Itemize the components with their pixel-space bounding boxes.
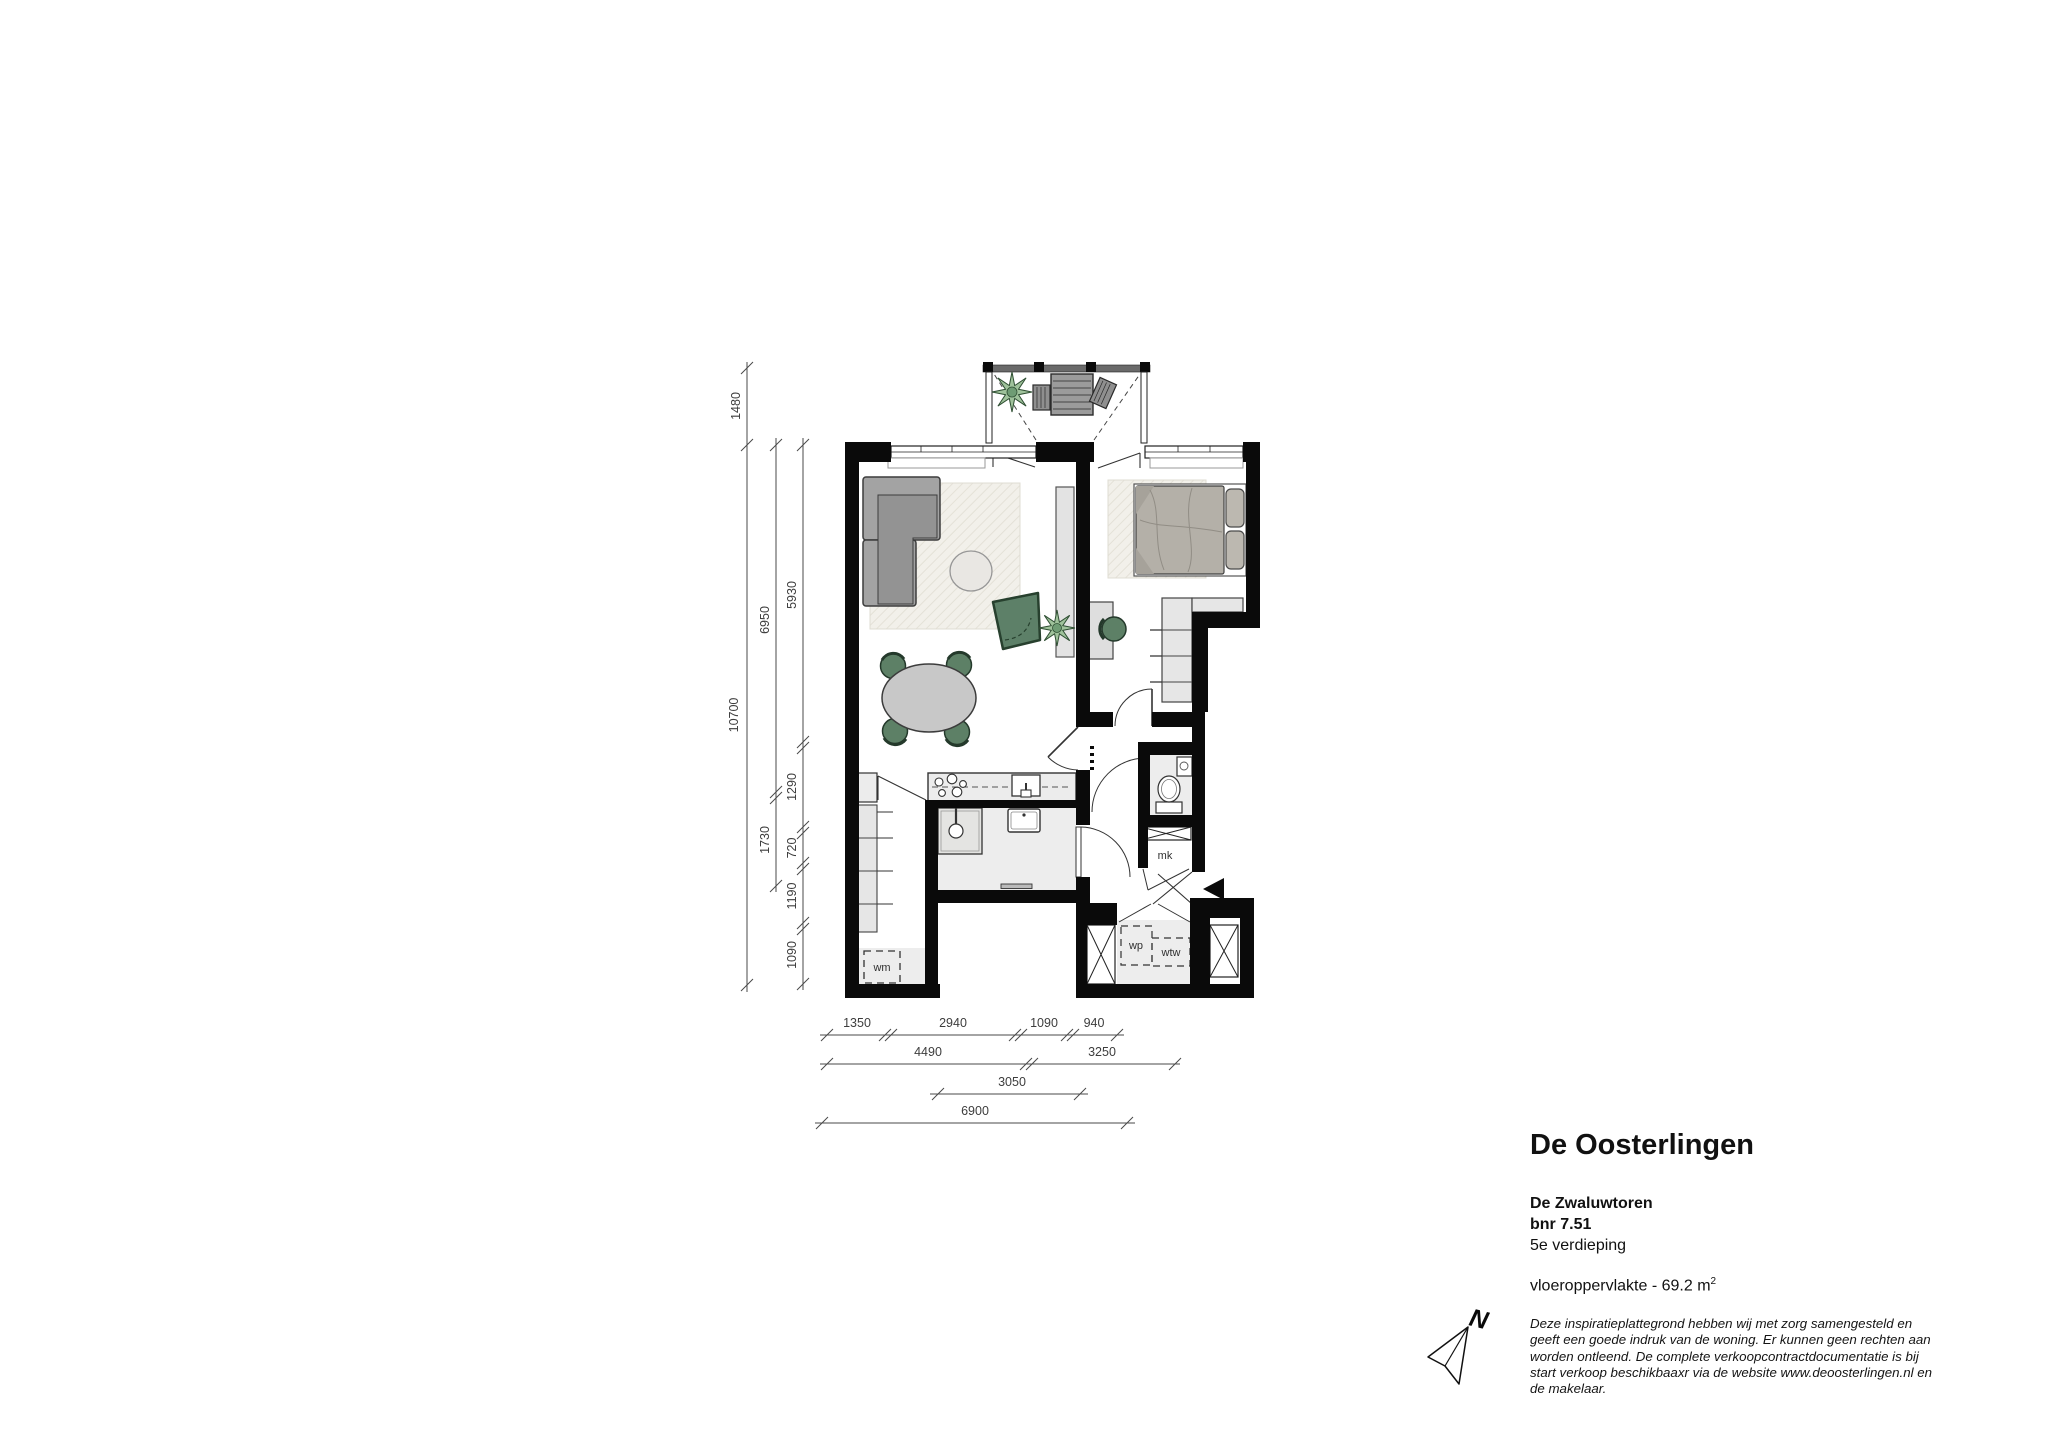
- dim-1190: 1190: [785, 883, 799, 910]
- shaft-above-mk: [1141, 827, 1191, 840]
- entrance-door: [1153, 872, 1192, 904]
- shaft-right: [1210, 925, 1238, 977]
- bedroom-door: [1115, 689, 1152, 726]
- dim-5930: 5930: [785, 581, 799, 609]
- balcony-chair-left: [1033, 385, 1050, 410]
- wall-vent-marks: [1090, 746, 1094, 770]
- dim-1480: 1480: [729, 392, 743, 420]
- balcony-rail-top: [983, 365, 1150, 372]
- pillow: [1226, 531, 1244, 569]
- beanbag-chair: [993, 593, 1040, 649]
- bathroom-door: [1076, 827, 1130, 877]
- label-wp: wp: [1128, 940, 1143, 952]
- kitchen-stub-cabinet: [857, 773, 877, 802]
- north-label: N: [1467, 1304, 1492, 1336]
- bedroom-window: [1145, 446, 1243, 468]
- bathroom-sink: [1008, 809, 1040, 832]
- balcony-plant-pot: [1007, 387, 1017, 397]
- dim-6950: 6950: [758, 606, 772, 634]
- kitchen-sink: [1012, 775, 1040, 797]
- closet-door-swing: [1119, 904, 1190, 922]
- dim-10700: 10700: [727, 698, 741, 733]
- bedroom-balcony-door: [1098, 453, 1140, 468]
- dining-table: [882, 664, 976, 732]
- project-title: De Oosterlingen: [1530, 1130, 1960, 1160]
- dim-1290: 1290: [785, 773, 799, 801]
- balcony-post: [1034, 362, 1044, 372]
- dim-1730: 1730: [758, 826, 772, 854]
- kitchen-counter: [857, 773, 1076, 802]
- balcony-rail-right: [1141, 372, 1147, 443]
- label-wm: wm: [872, 962, 890, 974]
- shaft-left: [1087, 925, 1115, 984]
- toilet-sink: [1177, 757, 1192, 776]
- floorplan-page: wm mk wp wtw: [0, 0, 2048, 1448]
- dim-3050: 3050: [998, 1075, 1026, 1089]
- dim-2940: 2940: [939, 1016, 967, 1030]
- label-wtw: wtw: [1161, 947, 1181, 959]
- pillow: [1226, 489, 1244, 527]
- dim-940: 940: [1084, 1016, 1105, 1030]
- floor-area-text: vloeroppervlakte - 69.2 m: [1530, 1277, 1711, 1294]
- laundry-floor: [858, 948, 925, 984]
- desk-chair: [1100, 617, 1126, 641]
- building-name: De Zwaluwtoren: [1530, 1194, 1960, 1215]
- toilet-door: [1092, 758, 1146, 812]
- balcony-table: [1051, 374, 1093, 415]
- floor-level: 5e verdieping: [1530, 1236, 1960, 1257]
- shower: [938, 808, 982, 854]
- drain-channel: [1001, 884, 1032, 889]
- disclaimer-line: geeft een goede indruk van de woning. Er…: [1530, 1332, 1960, 1348]
- floor-area: vloeroppervlakte - 69.2 m2: [1530, 1276, 1960, 1295]
- living-plant: [1039, 610, 1075, 646]
- disclaimer-line: Deze inspiratieplattegrond hebben wij me…: [1530, 1316, 1960, 1332]
- floor-area-sup: 2: [1711, 1276, 1717, 1287]
- pouf: [950, 551, 992, 591]
- info-block: De Oosterlingen De Zwaluwtoren bnr 7.51 …: [1530, 1130, 1960, 1397]
- toilet: [1156, 776, 1182, 813]
- dim-1090-left: 1090: [785, 941, 799, 969]
- dim-1090-bottom: 1090: [1030, 1016, 1058, 1030]
- dim-6900: 6900: [961, 1104, 989, 1118]
- entrance-arrow: [1203, 878, 1224, 900]
- label-mk: mk: [1158, 850, 1173, 862]
- balcony-post: [1086, 362, 1096, 372]
- balcony-post: [1140, 362, 1150, 372]
- tall-cabinets: [858, 805, 893, 932]
- unit-number: bnr 7.51: [1530, 1215, 1960, 1236]
- balcony-post: [983, 362, 993, 372]
- laundry-door-swing: [878, 776, 926, 800]
- living-hall-door: [1048, 727, 1078, 770]
- balcony-rail-left: [986, 372, 992, 443]
- bed: [1134, 484, 1246, 576]
- disclaimer: Deze inspiratieplattegrond hebben wij me…: [1530, 1316, 1960, 1397]
- dim-4490: 4490: [914, 1045, 942, 1059]
- balcony: [983, 362, 1150, 443]
- dim-3250: 3250: [1088, 1045, 1116, 1059]
- dim-1350: 1350: [843, 1016, 871, 1030]
- disclaimer-line: worden ontleend. De complete verkoopcont…: [1530, 1349, 1960, 1365]
- disclaimer-line: de makelaar.: [1530, 1381, 1960, 1397]
- dining-set: [881, 652, 977, 745]
- disclaimer-line: start verkoop beschikbaaxr via de websit…: [1530, 1365, 1960, 1381]
- dim-720: 720: [785, 838, 799, 859]
- living-window: [888, 446, 1036, 468]
- north-compass: N: [1428, 1304, 1492, 1384]
